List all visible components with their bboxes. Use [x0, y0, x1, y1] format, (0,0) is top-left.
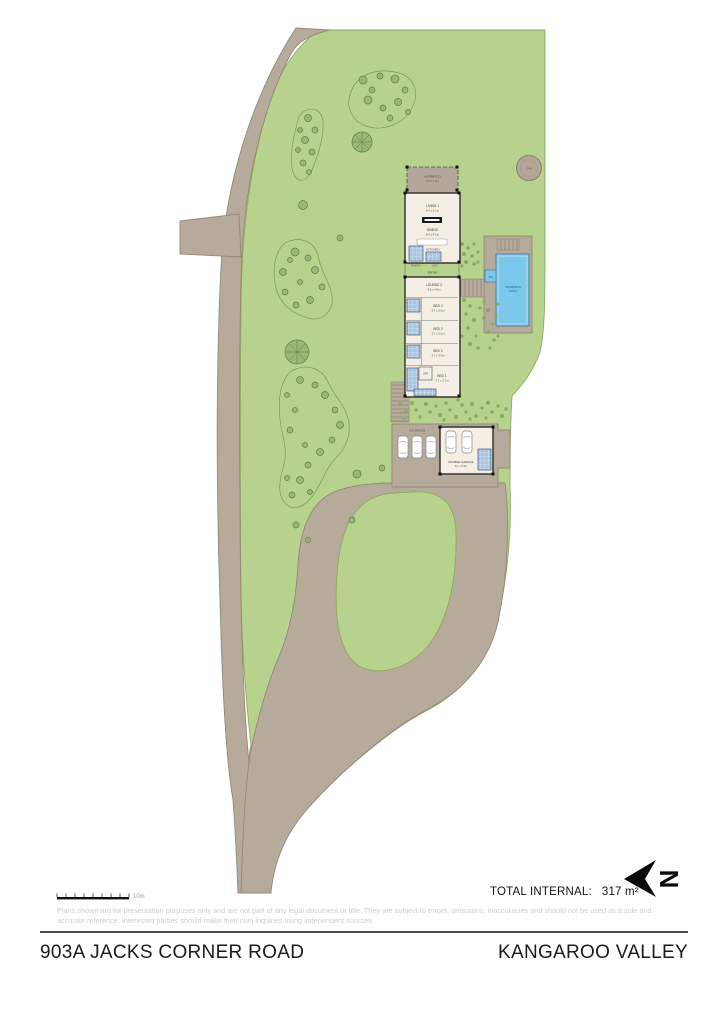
north-letter: N — [654, 870, 684, 889]
pantry-label: PANTRY — [411, 265, 421, 268]
dining-label: DINING — [427, 228, 439, 232]
address-row: 903A JACKS CORNER ROAD KANGAROO VALLEY — [40, 942, 688, 964]
car-icon — [398, 436, 408, 458]
pantry-room — [409, 246, 423, 261]
alfresco-label: ALFRESCO — [424, 175, 441, 179]
bed4-label: BED 4 — [433, 304, 442, 308]
house: ALFRESCO 8.4 x 3.4m LIVING 1 8.4 x 5.1m … — [404, 166, 461, 398]
spa-label: SPA — [488, 276, 493, 279]
bed4-dims: 3.7 x 3.0m — [431, 309, 445, 313]
lounge2-label: LOUNGE 2 — [426, 283, 442, 287]
total-internal: TOTAL INTERNAL:317 m² — [490, 886, 639, 898]
bed3-ensuite — [407, 322, 420, 335]
total-internal-value: 317 m² — [602, 886, 639, 898]
spa: SPA — [485, 270, 496, 282]
bed2-ensuite — [407, 345, 420, 358]
bed3-dims: 3.7 x 3.0m — [431, 332, 445, 336]
car-spaces-label: CAR SPACES — [409, 429, 426, 433]
water-tank: TANK — [517, 156, 542, 181]
bed2-label: BED 2 — [433, 349, 442, 353]
garage-label: DOUBLE GARAGE — [448, 460, 473, 464]
bed2-dims: 3.7 x 3.0m — [431, 354, 445, 358]
garage-store-room — [478, 449, 491, 470]
bathroom — [414, 389, 436, 396]
site-plan-page: SWIMMING POOL SPA — [0, 0, 725, 1024]
dining-dims: 8.4 x 4.1m — [426, 233, 440, 237]
alfresco-dims: 8.4 x 3.4m — [426, 179, 439, 183]
wir-label: WIR — [423, 373, 428, 376]
car-icon — [446, 431, 456, 453]
bed4-ensuite — [407, 299, 420, 312]
laundry-label: LDRY — [432, 265, 439, 268]
big-tree-icon — [352, 132, 372, 152]
locality: KANGAROO VALLEY — [498, 942, 688, 964]
bed1-dims: 3.7 x 3.7m — [435, 379, 449, 383]
big-tree-icon — [285, 340, 309, 364]
swimming-pool: SWIMMING POOL — [496, 254, 529, 326]
driveway-branch — [180, 214, 241, 257]
garage: DOUBLE GARAGE 6.1 x 5.9m — [439, 426, 495, 476]
entry-label: ENTRY — [428, 271, 438, 275]
disclaimer-line2: accurate reference. Interested parties s… — [57, 916, 697, 926]
scale-bar — [57, 894, 129, 900]
car-icon — [412, 436, 422, 458]
garage-dims: 6.1 x 5.9m — [455, 464, 467, 468]
disclaimer-line1: Plans shown are for presentation purpose… — [57, 906, 697, 916]
scale-label: 10m — [133, 894, 145, 900]
living-label: LIVING 1 — [426, 204, 439, 208]
bed3-label: BED 3 — [433, 327, 442, 331]
laundry-room — [426, 252, 441, 261]
tank-label: TANK — [526, 167, 533, 170]
bed1-label: BED 1 — [437, 374, 446, 378]
site-plan-svg: SWIMMING POOL SPA — [0, 0, 725, 1024]
total-internal-label: TOTAL INTERNAL: — [490, 886, 592, 898]
car-icon — [426, 436, 436, 458]
pool-label-line2: POOL — [509, 289, 518, 293]
living-dims: 8.4 x 5.1m — [426, 209, 440, 213]
car-icon — [462, 431, 472, 453]
footer-divider — [40, 931, 688, 933]
bed1-ensuite — [407, 368, 418, 391]
fireplace-inner — [425, 219, 440, 221]
street-address: 903A JACKS CORNER ROAD — [40, 942, 304, 964]
disclaimer: Plans shown are for presentation purpose… — [57, 906, 697, 926]
lounge2-dims: 4.5 x 4.0m — [427, 288, 441, 292]
kitchen-island-bench — [417, 239, 447, 245]
kitchen-label: KITCHEN — [426, 248, 439, 252]
